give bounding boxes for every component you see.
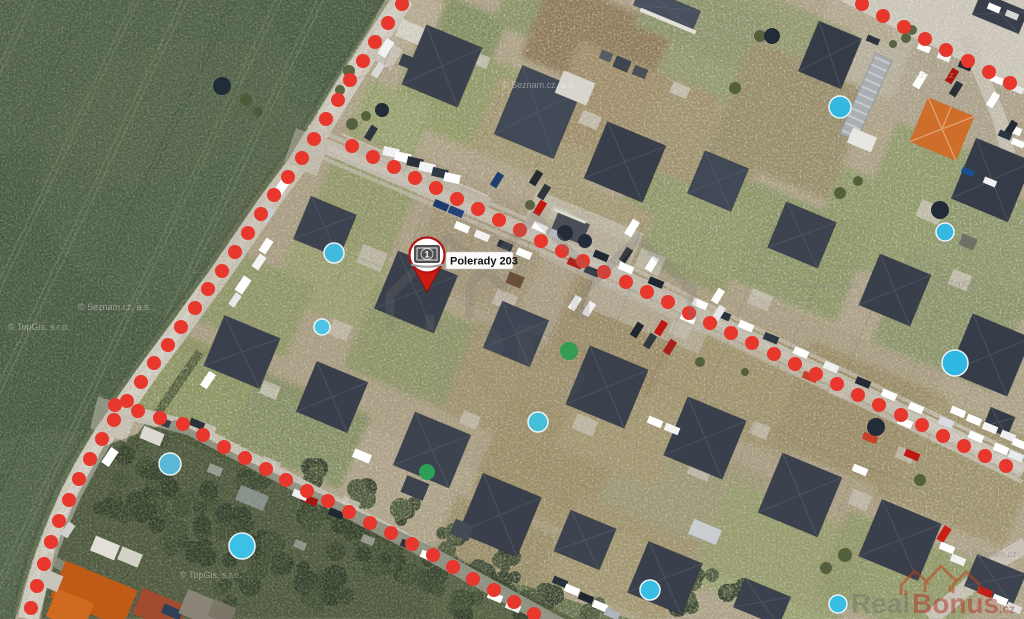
svg-text:© TopGis, s.r.o.: © TopGis, s.r.o. (180, 570, 242, 580)
svg-text:© Seznam.cz, a.s.: © Seznam.cz, a.s. (78, 302, 151, 312)
svg-text:© Seznam.cz: © Seznam.cz (963, 549, 1017, 559)
svg-text:1: 1 (424, 250, 429, 260)
svg-text:© TopGis, s.r.o.: © TopGis, s.r.o. (8, 322, 70, 332)
svg-text:© Seznam.cz: © Seznam.cz (900, 70, 954, 80)
svg-text:Polerady 203: Polerady 203 (450, 256, 518, 268)
svg-text:© Seznam.cz, a.s.: © Seznam.cz, a.s. (788, 280, 861, 290)
svg-text:Real: Real (851, 588, 910, 619)
svg-text:RB: RB (430, 301, 589, 424)
svg-text:© Seznam.cz, a.s.: © Seznam.cz, a.s. (502, 80, 575, 90)
svg-text:© TopGis: © TopGis (940, 279, 977, 289)
